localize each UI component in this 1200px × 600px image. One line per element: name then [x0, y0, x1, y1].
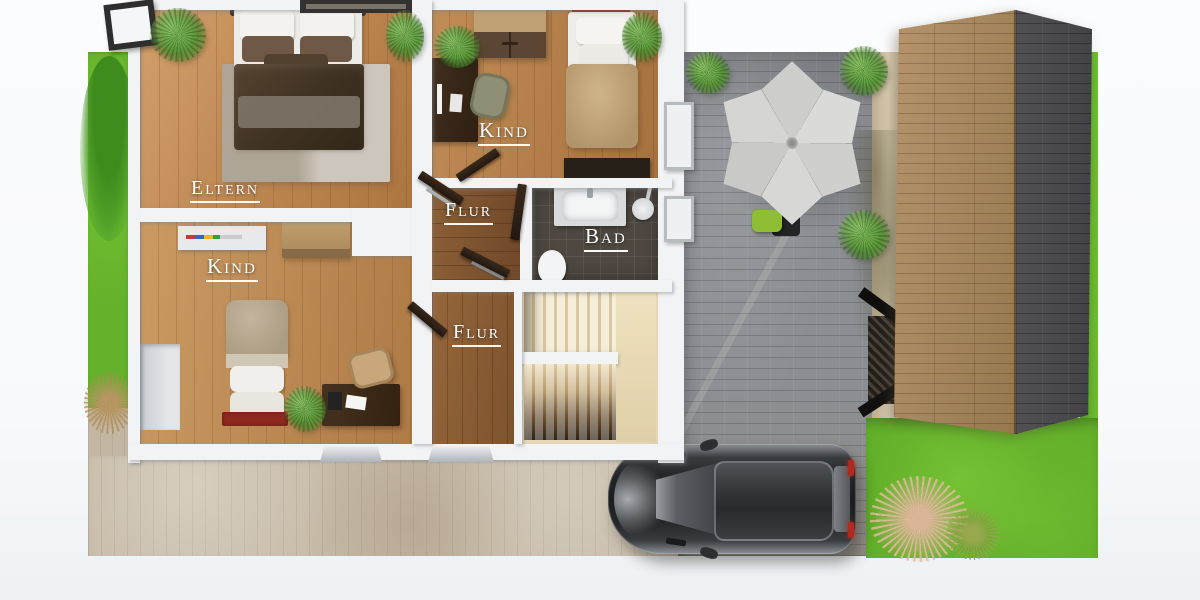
parasol-center-pole: [786, 137, 798, 149]
outer-wall-bottom: [128, 444, 684, 460]
window-right-1: [664, 102, 694, 170]
plant-eltern-left: [150, 8, 206, 62]
plant-patio-top-right: [840, 46, 888, 96]
bed-duvet-beige: [566, 64, 638, 148]
kind-bottom-wall-niche: [140, 344, 180, 430]
wall-kind-top-bottom: [432, 178, 672, 188]
desk-paper: [345, 395, 367, 411]
garage-roof-gray-slope: [1016, 10, 1092, 434]
open-window-top-left: [103, 0, 158, 51]
car-roof-glass: [714, 461, 834, 541]
room-label-kind-bottom: Kind: [206, 256, 258, 282]
kind-bottom-dresser: [282, 216, 350, 258]
desk-laptop: [328, 392, 342, 410]
bed-duvet-taupe: [226, 300, 288, 358]
car-taillight-top: [848, 460, 854, 476]
plant-kind-top-left: [434, 26, 480, 68]
desk-monitor: [437, 84, 442, 114]
car-taillight-bottom: [848, 522, 854, 538]
bath-faucet: [587, 188, 593, 198]
kind-bottom-desk: [322, 384, 400, 426]
plant-patio-top-left: [686, 52, 730, 94]
colored-pencils: [186, 235, 242, 239]
wardrobe-handles: [502, 42, 518, 45]
eltern-double-bed: [230, 0, 366, 150]
plant-kind-top-right: [622, 12, 662, 62]
window-pane: [306, 4, 406, 9]
kind-bottom-red-mat: [222, 412, 288, 426]
stairs-divider-wall: [522, 352, 618, 364]
bed-blanket-gray: [238, 96, 360, 128]
staircase-zone: [520, 292, 660, 444]
plant-eltern-right: [386, 10, 424, 62]
flur-bottom-floor: [432, 292, 520, 444]
desk-keyboard: [449, 94, 462, 113]
kind-bottom-single-bed: [224, 298, 290, 428]
wardrobe-door-seam: [509, 32, 511, 58]
wall-bad-bottom: [432, 280, 672, 292]
toilet: [538, 250, 566, 284]
room-label-bad: Bad: [584, 226, 628, 252]
floorplan-canvas: Eltern Kind Flur Bad Kind Flur: [0, 0, 1200, 600]
wall-block-nook: [352, 208, 412, 256]
wall-eltern-kind: [140, 208, 354, 222]
window-sill-bottom-2: [428, 446, 494, 462]
room-label-flur-bottom: Flur: [452, 322, 501, 347]
patio-chair-green-cushion: [752, 210, 782, 232]
driveway-pavement: [88, 448, 678, 556]
garage-roof-ridge: [1014, 10, 1017, 434]
dry-shrub: [84, 372, 134, 434]
kind-top-lowboard: [564, 158, 650, 178]
wall-vertical-center: [412, 0, 432, 444]
room-label-kind-top: Kind: [478, 120, 530, 146]
stairs-landing: [616, 292, 656, 442]
car: [608, 444, 856, 554]
room-label-flur-top: Flur: [444, 200, 493, 225]
shower-head: [632, 198, 654, 220]
plant-patio-mid-right: [838, 210, 890, 260]
wall-stairs-left: [514, 292, 522, 444]
kind-bottom-sideboard: [178, 226, 266, 250]
stairs-upper-flight: [524, 292, 616, 354]
bed-pillow-1: [230, 366, 284, 392]
bath-vanity-counter: [554, 186, 626, 226]
bed-pillow-1: [576, 18, 628, 44]
outer-wall-left: [128, 0, 140, 463]
window-sill-bottom-1: [320, 446, 382, 462]
open-window-top-center: [300, 0, 412, 13]
room-label-eltern: Eltern: [190, 178, 260, 203]
plant-kind-bottom: [284, 386, 326, 432]
garage-roof-brown-slope: [894, 10, 1016, 434]
garage-roof: [894, 10, 1092, 434]
pampas-plant-green: [946, 508, 1000, 560]
window-right-2: [664, 196, 694, 242]
stairs-lower-flight: [524, 364, 616, 440]
window-pane: [110, 6, 152, 44]
